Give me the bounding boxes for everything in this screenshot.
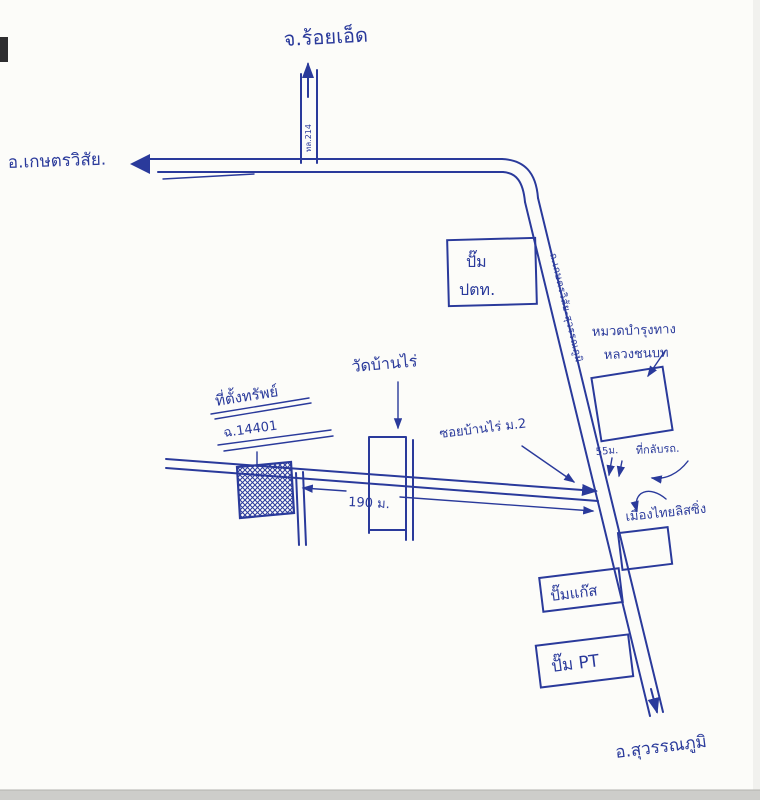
label-destination-south: อ.สุวรรณภูมิ [614, 732, 708, 763]
property-side-lane [296, 472, 306, 545]
uturn-tick-arrow1-icon [609, 458, 612, 475]
property-hatched-box [237, 462, 294, 518]
label-maintenance-line1: หมวดบำรุงทาง [592, 322, 676, 340]
road-west-stray-stroke [163, 174, 254, 179]
map-canvas: จ.ร้อยเอ็ด ทล.214 อ.เกษตรวิสัย. ถ.เกษตรว… [0, 0, 760, 800]
arrow-south-icon [651, 689, 657, 712]
soi-pointer-arrow-icon [522, 446, 574, 482]
arrow-west-icon [130, 154, 150, 174]
label-leasing: เมืองไทยลิสซิ่ง [625, 500, 707, 525]
scan-edge-right [753, 0, 760, 792]
scan-artifact-mark [0, 37, 8, 62]
uturn-tick-arrow2-icon [619, 461, 622, 476]
label-distance-55m: 55ม. [595, 445, 618, 458]
uturn-pointer-arrow-icon [652, 461, 688, 478]
soi-top-edge [166, 459, 596, 491]
label-soi: ซอยบ้านไร่ ม.2 [439, 415, 528, 442]
label-u-turn: ที่กลับรถ. [635, 440, 679, 457]
dimension-arrow-left-icon [303, 488, 346, 491]
label-distance-190m: 190 ม. [348, 495, 390, 512]
label-gas-station: ปั๊มแก๊ส [549, 579, 598, 605]
label-ptt-line2: ปตท. [459, 280, 495, 299]
label-destination-west: อ.เกษตรวิสัย. [7, 150, 106, 173]
label-temple: วัดบ้านไร่ [351, 351, 419, 376]
label-highway-214: ทล.214 [304, 124, 313, 152]
scanned-sketch-map: จ.ร้อยเอ็ด ทล.214 อ.เกษตรวิสัย. ถ.เกษตรว… [0, 0, 760, 800]
scan-edge-bottom [0, 790, 760, 800]
label-pt-station: ปั๊ม PT [550, 647, 601, 677]
label-destination-north: จ.ร้อยเอ็ด [283, 22, 369, 51]
road-curve-outer [502, 159, 538, 198]
maintenance-box [591, 367, 672, 441]
label-main-road-name: ถ.เกษตรวิสัย-สุวรรณภูมิ [547, 252, 584, 364]
label-property-title: ที่ตั้งทรัพย์ [213, 380, 279, 410]
label-ptt-line1: ปั๊ม [466, 250, 487, 271]
temple-box [369, 437, 413, 540]
road-curve-inner [503, 172, 525, 202]
